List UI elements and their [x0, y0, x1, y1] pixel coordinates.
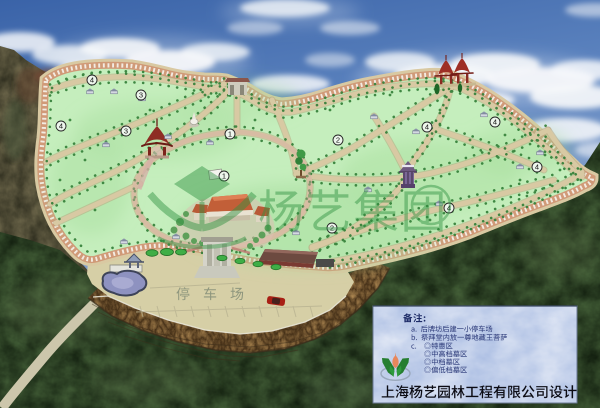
- svg-text:3: 3: [124, 127, 128, 136]
- svg-text:2: 2: [336, 136, 340, 145]
- svg-text:3: 3: [139, 91, 143, 100]
- svg-text:4: 4: [425, 123, 429, 132]
- svg-text:4: 4: [90, 76, 94, 85]
- svg-text:4: 4: [493, 118, 497, 127]
- svg-text:1: 1: [228, 130, 232, 139]
- svg-text:4: 4: [535, 163, 539, 172]
- svg-text:4: 4: [59, 122, 63, 131]
